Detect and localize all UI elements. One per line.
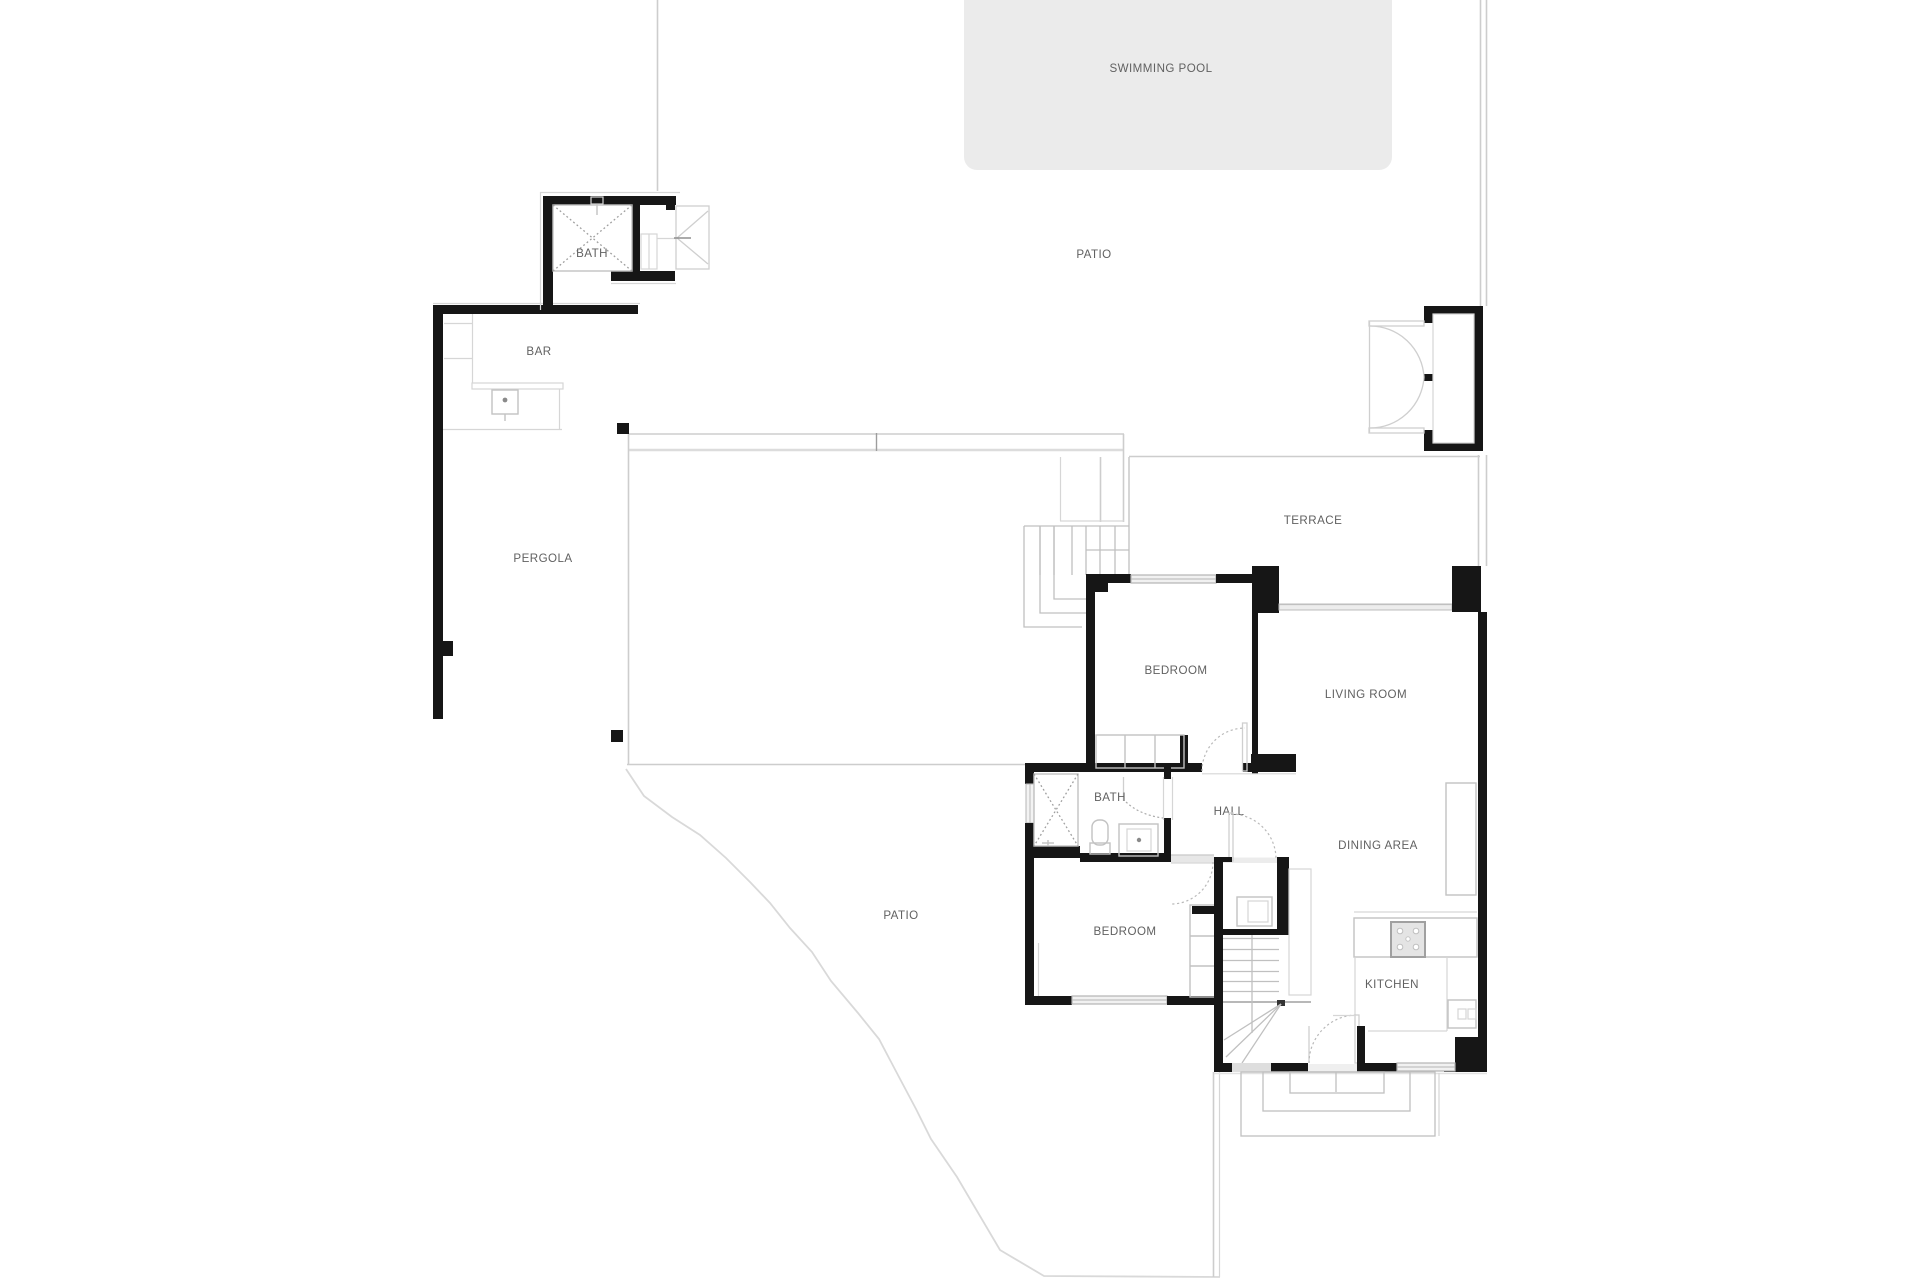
- svg-text:PATIO: PATIO: [1076, 248, 1111, 261]
- svg-text:BATH: BATH: [576, 247, 608, 260]
- svg-text:PATIO: PATIO: [883, 909, 918, 922]
- svg-text:KITCHEN: KITCHEN: [1365, 978, 1419, 991]
- svg-text:PERGOLA: PERGOLA: [513, 552, 572, 565]
- svg-text:BEDROOM: BEDROOM: [1144, 664, 1207, 677]
- svg-text:BATH: BATH: [1094, 791, 1126, 804]
- svg-text:TERRACE: TERRACE: [1284, 514, 1343, 527]
- svg-text:BEDROOM: BEDROOM: [1093, 925, 1156, 938]
- svg-text:SWIMMING POOL: SWIMMING POOL: [1109, 62, 1212, 75]
- svg-text:DINING AREA: DINING AREA: [1338, 839, 1418, 852]
- svg-text:BAR: BAR: [526, 345, 551, 358]
- svg-text:LIVING ROOM: LIVING ROOM: [1325, 688, 1407, 701]
